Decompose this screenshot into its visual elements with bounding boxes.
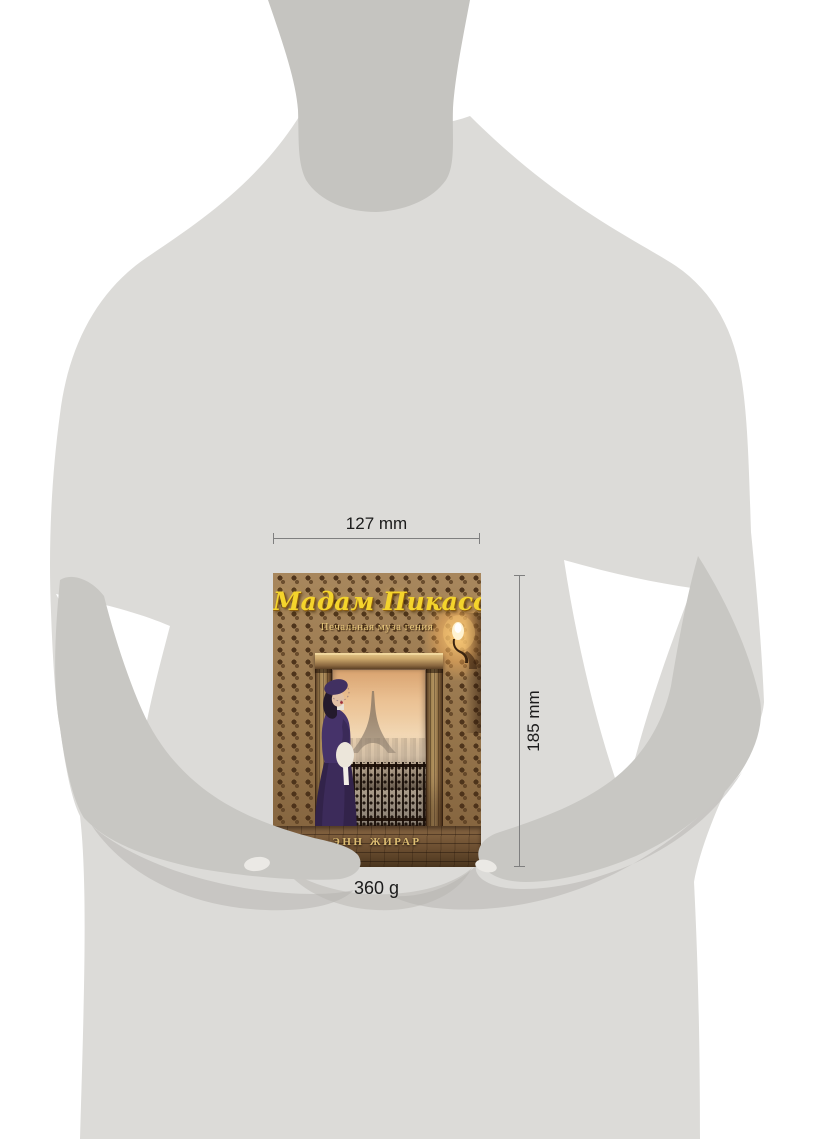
book-cover: Мадам Пикассо Печальная муза гения ЭНН Ж… (273, 573, 481, 867)
mannequin-neck (268, 0, 470, 212)
book-author: ЭНН ЖИРАР (273, 836, 481, 848)
height-dimension-line (519, 575, 520, 867)
right-forearm-hand (478, 556, 761, 882)
height-dimension-label: 185 mm (524, 679, 544, 763)
left-elbow-gap (56, 594, 170, 764)
woman-figure-icon (309, 671, 381, 839)
mannequin-silhouette (0, 0, 820, 1139)
book-title: Мадам Пикассо (273, 587, 481, 616)
dimension-annotations: 127 mm 185 mm 360 g (0, 0, 820, 1139)
mannequin-arms (0, 0, 820, 1139)
doorway-column-right (426, 669, 443, 829)
product-size-diagram: Мадам Пикассо Печальная муза гения ЭНН Ж… (0, 0, 820, 1139)
width-dimension-label: 127 mm (273, 514, 480, 534)
right-elbow-gap (564, 560, 692, 804)
weight-label: 360 g (273, 878, 480, 899)
book-subtitle: Печальная муза гения (273, 621, 481, 633)
left-thumbnail-highlight (243, 855, 271, 872)
width-dimension-line (273, 538, 480, 539)
book-bottom-shadow (284, 868, 472, 910)
